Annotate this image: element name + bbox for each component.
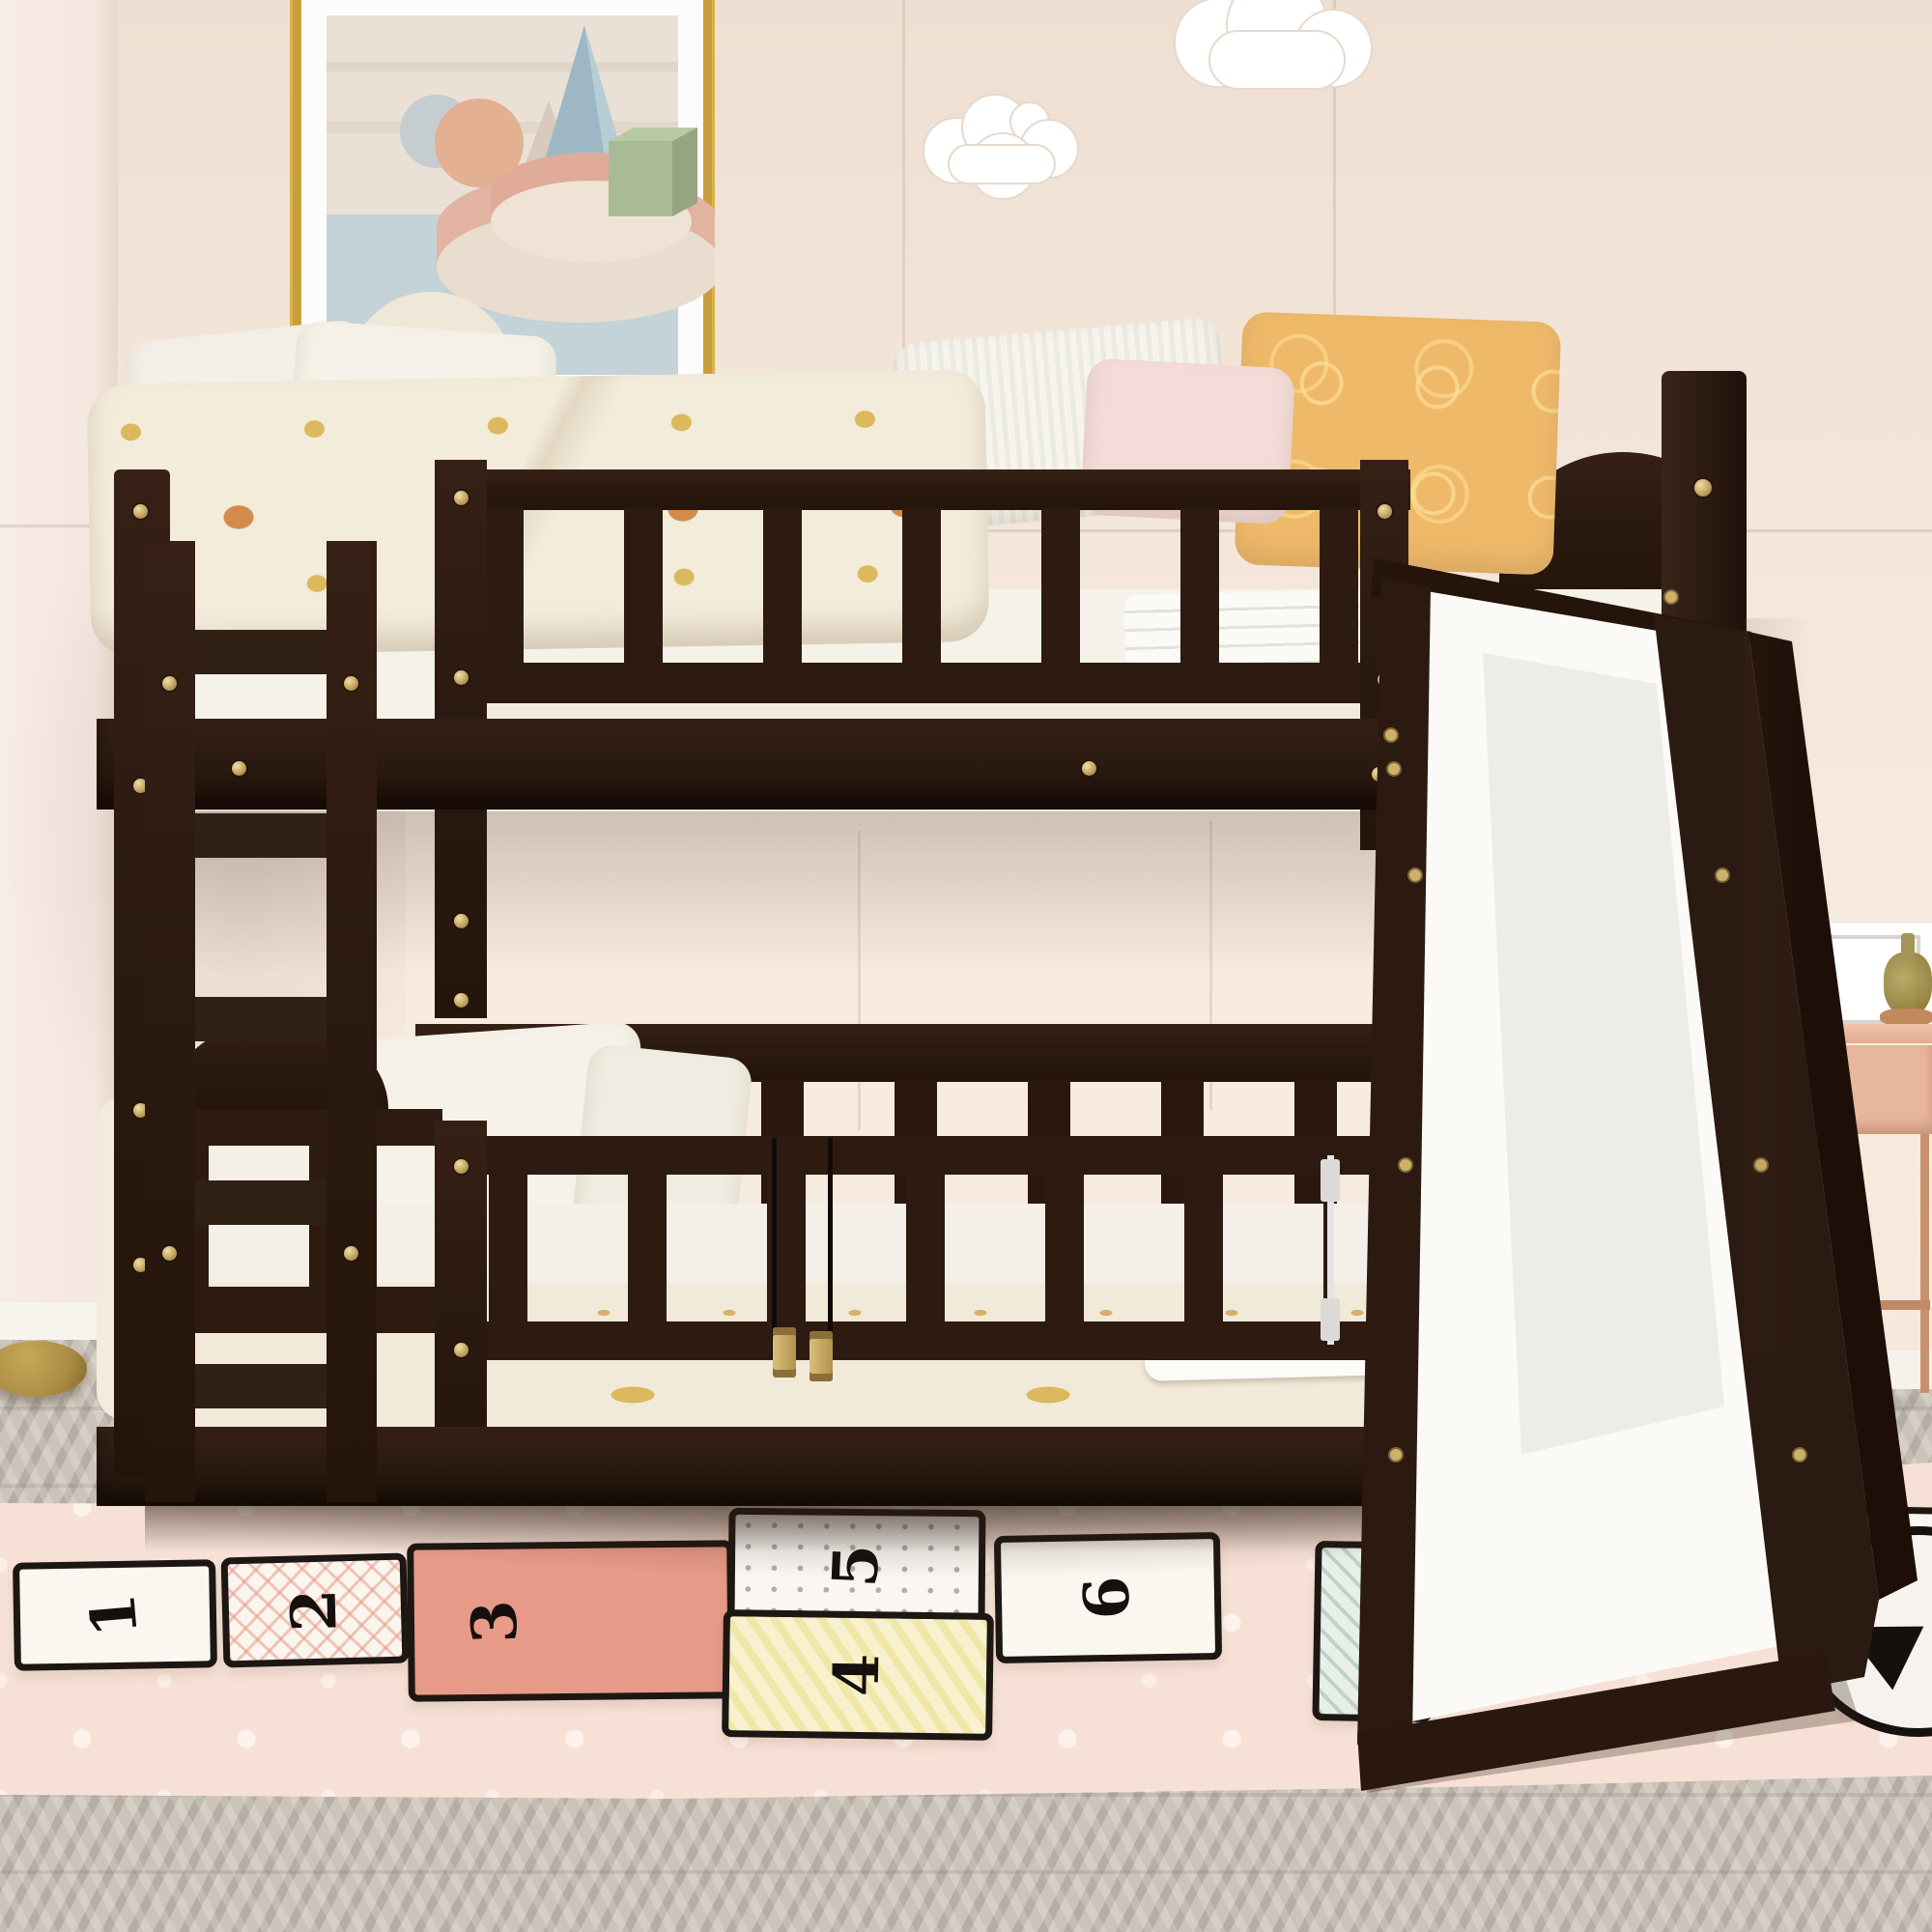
ladder-rung-1: [193, 630, 328, 674]
ladder-rung-3: [193, 997, 328, 1041]
top-guardrail-bottom-rail: [437, 663, 1410, 703]
gate-slats: [489, 1173, 1331, 1323]
rug-number-4: 4: [827, 1653, 890, 1696]
ladder-rung-5: [193, 1364, 328, 1408]
ladder-rung-2: [193, 813, 328, 858]
bedroom-scene: 1 2 3 5 4 6 8 ▲: [0, 0, 1932, 1932]
art-green-cube: [609, 141, 672, 216]
rug-number-1: 1: [82, 1591, 148, 1639]
gate-hinge-silver-leaf-bottom: [1321, 1298, 1340, 1341]
rug-number-6: 6: [1076, 1575, 1140, 1621]
gate-bottom-rail: [437, 1321, 1416, 1360]
ladder-rail-right: [327, 541, 377, 1502]
gate-door-split-left: [772, 1138, 777, 1358]
rug-square-4: 4: [722, 1609, 994, 1741]
gate-hinge-brass-right: [810, 1331, 833, 1381]
slide: [1338, 537, 1932, 1812]
wall-shadow-right-of-bed: [1745, 618, 1812, 1352]
cloud-large: [1151, 0, 1389, 120]
rug-number-3: 3: [464, 1599, 527, 1644]
top-guardrail-slats: [485, 508, 1366, 665]
gate-door-split-right: [828, 1138, 833, 1358]
top-guardrail-top-rail: [437, 469, 1410, 510]
rug-number-2: 2: [283, 1588, 346, 1633]
gate-hinge-brass-left: [773, 1327, 796, 1378]
gate-top-rail: [437, 1136, 1416, 1175]
gate-hinge-silver-leaf-top: [1321, 1159, 1340, 1202]
cloud-small: [906, 81, 1109, 209]
ladder-rung-4: [193, 1180, 328, 1225]
ladder: [145, 541, 367, 1502]
art-print: [327, 15, 715, 375]
ladder-rail-left: [145, 541, 195, 1502]
